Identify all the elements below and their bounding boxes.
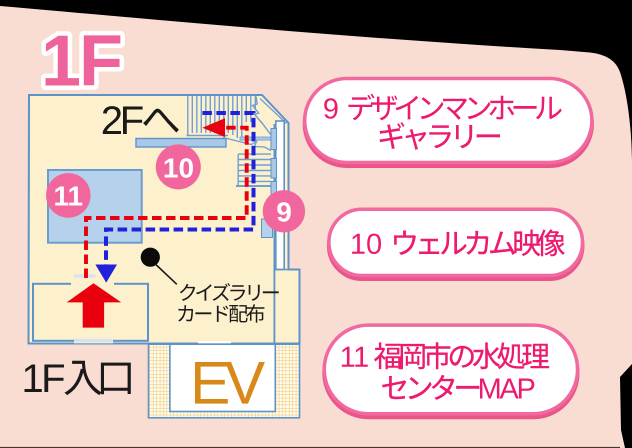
svg-text:11: 11 bbox=[53, 181, 83, 212]
svg-text:1F: 1F bbox=[41, 22, 121, 102]
svg-text:10: 10 bbox=[163, 153, 194, 184]
svg-text:9: 9 bbox=[276, 197, 292, 228]
